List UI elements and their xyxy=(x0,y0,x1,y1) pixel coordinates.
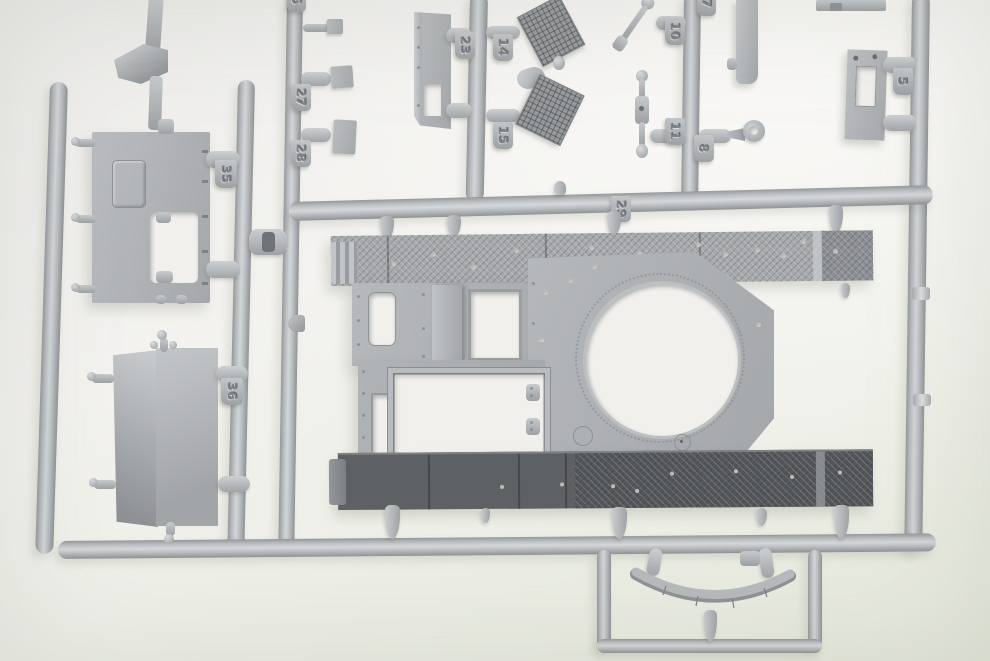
alignment-tab xyxy=(158,119,174,134)
sprue-gate xyxy=(206,261,240,278)
hole xyxy=(391,261,396,266)
hole xyxy=(500,485,504,489)
ball-pin xyxy=(481,508,490,523)
hull-turret-plate xyxy=(528,252,774,468)
tag-number: 27 xyxy=(294,88,309,106)
access-panel-detail xyxy=(112,160,146,208)
rivet xyxy=(422,293,425,296)
tag-number: 36 xyxy=(225,382,240,400)
rivet xyxy=(357,343,360,346)
tag-number: 28 xyxy=(294,144,309,162)
sprue-gate xyxy=(829,205,843,233)
tag-number: 14 xyxy=(496,38,511,56)
runner-bottom xyxy=(58,533,936,559)
gate-bump xyxy=(554,181,566,195)
hull-upper-left-plate xyxy=(352,283,530,366)
cylinder-fitting xyxy=(249,229,287,255)
hatch-opening xyxy=(468,289,522,361)
edge-notch xyxy=(202,250,208,253)
link-shaft xyxy=(639,122,645,146)
grille-stub xyxy=(553,56,565,70)
tag-number: 10 xyxy=(668,22,683,40)
part-tag-14: 14 xyxy=(493,34,513,61)
flat-bar-part-7 xyxy=(736,0,758,84)
sprue-gate xyxy=(883,115,915,131)
linkage-part-11 xyxy=(633,70,652,160)
ball-pin xyxy=(841,283,850,298)
runner-left xyxy=(35,82,68,554)
hole xyxy=(790,475,794,479)
small-plate-part xyxy=(332,119,357,154)
panel-flange xyxy=(414,12,422,129)
strip-dark-texture xyxy=(575,451,873,508)
plate-hole xyxy=(853,56,858,61)
small-fitting xyxy=(327,19,343,34)
panel-seam xyxy=(518,454,520,509)
sprue-gate xyxy=(218,476,250,492)
strip-light-band xyxy=(816,452,825,507)
hole xyxy=(723,252,728,257)
rivet xyxy=(362,436,365,439)
strip-light-band xyxy=(813,231,823,281)
hole xyxy=(801,239,806,244)
hole xyxy=(635,489,639,493)
rivet xyxy=(530,428,533,431)
part-tag-35: 35 xyxy=(215,160,237,188)
hole xyxy=(592,264,597,269)
ball-pin xyxy=(756,508,767,526)
pin-ball xyxy=(89,478,98,487)
cutout-tab xyxy=(156,212,171,223)
pin-ball xyxy=(71,283,80,292)
part-35-plate xyxy=(92,132,210,303)
sprue-photo: 35 36 6 27 28 23 14 15 7 xyxy=(0,0,990,661)
sprue-gate xyxy=(704,610,717,642)
rivet xyxy=(362,370,365,373)
hole xyxy=(538,338,544,342)
subframe-right xyxy=(808,550,822,648)
tag-number: 8 xyxy=(696,144,711,153)
part-tag-8: 8 xyxy=(694,135,714,162)
rivet xyxy=(530,387,533,390)
tag-number: 35 xyxy=(219,165,234,183)
hole xyxy=(755,248,760,253)
raised-box xyxy=(432,285,462,363)
bar-stub xyxy=(727,58,737,70)
strip-dark-section xyxy=(821,230,874,281)
round-hatch-detail xyxy=(674,434,691,451)
edge-on-part xyxy=(816,0,886,11)
hole xyxy=(838,470,842,474)
part-tag-27: 27 xyxy=(291,84,311,111)
cutout-tab xyxy=(156,271,173,283)
hinge-block xyxy=(526,384,540,401)
runner-sleeve xyxy=(912,287,930,300)
grille-part-14 xyxy=(517,0,586,67)
fitting-core xyxy=(262,232,275,252)
rivet xyxy=(532,322,535,325)
link-hole xyxy=(639,106,644,111)
hole xyxy=(734,469,738,473)
eyelet-hole xyxy=(749,126,758,135)
tag-number: 11 xyxy=(668,122,683,140)
hole xyxy=(431,252,436,257)
sprue-gate xyxy=(486,109,520,122)
sprue-gate xyxy=(607,211,621,235)
rivet xyxy=(362,414,365,417)
runner-stub xyxy=(303,24,329,32)
rivet xyxy=(532,282,535,285)
turret-ring-opening xyxy=(583,281,741,439)
strip-end-bracket xyxy=(331,242,357,284)
hole xyxy=(756,322,761,327)
rivet xyxy=(422,355,425,358)
door-plate-part-5 xyxy=(844,49,887,140)
hole xyxy=(471,264,476,269)
edge-notch xyxy=(202,282,208,285)
hole xyxy=(833,249,838,254)
pin-ball xyxy=(71,137,80,146)
plate-hole xyxy=(872,54,877,59)
part-36-panel-left-face xyxy=(113,350,158,527)
hull-lower-frame xyxy=(358,360,545,466)
runner-stub xyxy=(145,0,164,50)
link-ball xyxy=(636,144,648,158)
edge-notch xyxy=(830,3,842,11)
pin-ball xyxy=(164,534,174,544)
hole xyxy=(568,278,573,283)
clip-nub xyxy=(176,295,187,304)
panel-seam xyxy=(565,453,567,508)
rivet xyxy=(417,66,420,69)
small-plate-part xyxy=(330,65,353,88)
part-tag-15: 15 xyxy=(493,122,513,149)
hole xyxy=(670,472,674,476)
rivet xyxy=(362,392,365,395)
tag-number: 6 xyxy=(289,0,304,5)
rivet xyxy=(417,26,420,29)
rivet xyxy=(357,295,360,298)
part-36-panel-right-face xyxy=(156,348,218,526)
part-tag-23: 23 xyxy=(455,32,475,59)
part-tag-36: 36 xyxy=(221,378,243,405)
part-tag-5: 5 xyxy=(893,68,913,95)
tag-number: 7 xyxy=(699,0,714,8)
round-nub xyxy=(288,315,305,332)
rod-part-10 xyxy=(610,0,655,54)
rivet xyxy=(357,319,360,322)
vision-port-cutout xyxy=(368,292,396,346)
part-pin xyxy=(160,338,168,352)
hull-lower-dark-strip xyxy=(338,449,873,510)
pin-ball xyxy=(87,372,96,381)
pin-lobe xyxy=(169,341,177,349)
rivet xyxy=(530,394,533,397)
part-tag-7-partial: 7 xyxy=(697,0,716,16)
runner-vertical-3 xyxy=(278,0,303,548)
pin-ball xyxy=(71,213,80,222)
runner-sleeve xyxy=(913,394,931,406)
hole xyxy=(514,248,519,253)
part-tag-26-partial: 6 xyxy=(287,0,306,12)
hole xyxy=(543,290,548,295)
clip-nub xyxy=(156,295,166,304)
panel-seam xyxy=(428,454,430,509)
hole xyxy=(560,482,564,486)
plate-window xyxy=(855,66,877,108)
panel-cutout xyxy=(424,84,441,116)
pin-lobe xyxy=(150,341,158,349)
sprue-gate xyxy=(385,505,400,539)
edge-notch xyxy=(202,150,208,153)
sprue-gate xyxy=(612,507,627,539)
hatch-dot xyxy=(680,440,683,443)
hole xyxy=(589,245,594,250)
pin-ball xyxy=(157,330,167,340)
panel-seam xyxy=(387,235,389,285)
hole xyxy=(611,484,615,488)
sprue-gate xyxy=(446,103,472,118)
edge-notch xyxy=(202,215,208,218)
tag-number: 15 xyxy=(496,126,511,144)
hole xyxy=(781,253,786,258)
rivet xyxy=(530,421,533,424)
rivet xyxy=(417,104,420,107)
hinge-block xyxy=(526,418,540,435)
round-hatch-detail xyxy=(573,426,593,446)
edge-notch xyxy=(202,180,208,183)
tag-number: 5 xyxy=(895,77,910,86)
part-tag-10: 10 xyxy=(665,18,685,45)
rivet xyxy=(417,46,420,49)
strip-end-bracket xyxy=(329,459,346,505)
rivet xyxy=(422,327,425,330)
part-tag-28: 28 xyxy=(291,140,311,167)
hole xyxy=(696,242,701,247)
subframe-left xyxy=(597,550,611,648)
part-tag-11: 11 xyxy=(665,118,685,145)
tag-number: 23 xyxy=(458,36,473,54)
